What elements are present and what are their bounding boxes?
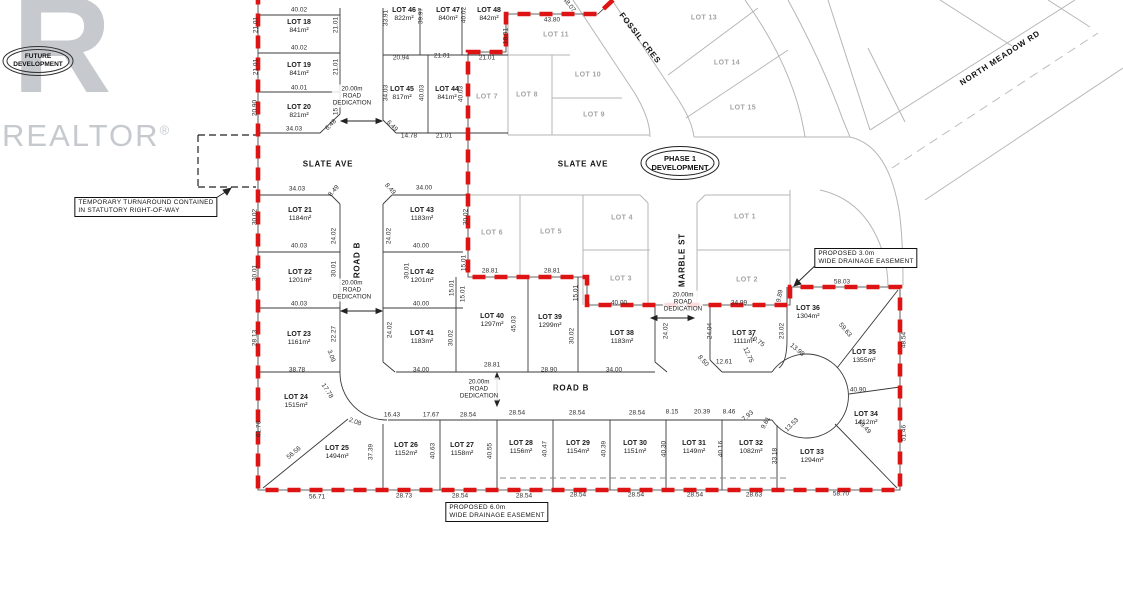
note-line-1: PROPOSED 3.0m: [818, 250, 913, 258]
dimension-text: 30.01: [252, 265, 259, 281]
lot-label: LOT 421201m²: [410, 269, 434, 285]
dedication-width: 20.00m: [664, 292, 702, 299]
lot-number: LOT 10: [575, 72, 601, 79]
dimension-text: 40.00: [611, 300, 627, 307]
dimension-text: 28.54: [570, 492, 586, 499]
dimension-text: 48.54: [901, 332, 908, 348]
dimension-text: 33.91: [383, 10, 390, 26]
dimension-text: 28.81: [484, 362, 500, 369]
dimension-text: 22.27: [331, 326, 338, 342]
dimension-text: 21.01: [253, 59, 260, 75]
lot-label: LOT 271158m²: [450, 442, 474, 458]
dimension-text: 14.78: [401, 133, 417, 140]
dimension-text: 40.03: [291, 301, 307, 308]
dimension-text: 40.00: [413, 301, 429, 308]
stamp-line-2: DEVELOPMENT: [651, 163, 708, 172]
dimension-text: 20.94: [393, 55, 409, 62]
dimension-text: 40.30: [661, 441, 668, 457]
future-lot-label: LOT 3: [610, 276, 632, 283]
dimension-text: 39.97: [418, 8, 425, 24]
dimension-label: 56.71: [309, 494, 325, 501]
lot-area: 1294m²: [800, 457, 824, 465]
street-name: ROAD B: [353, 242, 362, 278]
future-lot-label: LOT 5: [540, 229, 562, 236]
dimension-text: 40.02: [291, 7, 307, 14]
lot-label: LOT 311149m²: [682, 440, 706, 456]
dedication-road: ROAD: [333, 93, 371, 100]
lot-label: LOT 251494m²: [325, 445, 349, 461]
future-lot-label: LOT 13: [691, 15, 717, 22]
dedication-road: ROAD: [460, 386, 498, 393]
dimension-text: 34.00: [416, 185, 432, 192]
note-line-2: IN STATUTORY RIGHT-OF-WAY: [78, 207, 213, 215]
dimension-text: 58.03: [834, 279, 850, 286]
lot-area: 841m²: [435, 94, 459, 102]
lot-area: 841m²: [287, 27, 311, 35]
lot-number: LOT 27: [450, 442, 474, 450]
dimension-label: 28.54: [628, 492, 644, 499]
dimension-label: 8.15: [666, 409, 679, 416]
lot-number: LOT 7: [476, 94, 498, 101]
street-name-label: MARBLE ST: [678, 233, 687, 287]
dimension-text: 21.01: [333, 59, 340, 75]
dimension-label: 21.01: [333, 59, 340, 75]
street-name-label: ROAD B: [353, 242, 362, 278]
lot-number: LOT 40: [480, 313, 504, 321]
dedication-word: DEDICATION: [460, 393, 498, 400]
lot-label: LOT 361304m²: [796, 305, 820, 321]
lot-label: LOT 371111m²: [732, 330, 756, 346]
lot-number: LOT 36: [796, 305, 820, 313]
future-stamp: FUTUREDEVELOPMENT: [13, 53, 62, 69]
dimension-text: 30.02: [463, 209, 470, 225]
dimension-text: 38.78: [289, 367, 305, 374]
lot-area: 1412m²: [854, 419, 878, 427]
lot-area: 1158m²: [450, 450, 474, 458]
lot-area: 1183m²: [410, 215, 434, 223]
dimension-label: 34.00: [416, 185, 432, 192]
lot-number: LOT 3: [610, 276, 632, 283]
dimension-text: 15.01: [460, 286, 467, 302]
lot-number: LOT 4: [611, 215, 633, 222]
dedication-width: 20.00m: [460, 379, 498, 386]
street-name-label: ROAD B: [553, 384, 589, 393]
dimension-label: 30.01: [252, 265, 259, 281]
lot-area: 1183m²: [410, 338, 434, 346]
temporary-turnaround-outline: [198, 135, 256, 187]
dimension-label: 21.01: [253, 17, 260, 33]
lot-area: 1355m²: [852, 357, 876, 365]
dedication-road: ROAD: [333, 287, 371, 294]
dimension-text: 28.54: [509, 410, 525, 417]
dimension-label: 28.81: [484, 362, 500, 369]
lot-label: LOT 48842m²: [477, 7, 501, 23]
lot-number: LOT 15: [730, 105, 756, 112]
lot-number: LOT 24: [284, 394, 308, 402]
lot-label: LOT 19841m²: [287, 62, 311, 78]
dimension-text: 28.54: [516, 493, 532, 500]
dimension-label: 22.27: [331, 326, 338, 342]
lot-number: LOT 20: [287, 104, 311, 112]
dedication-width: 20.00m: [333, 280, 371, 287]
dimension-label: 40.02: [291, 45, 307, 52]
lot-number: LOT 37: [732, 330, 756, 338]
lot-label: LOT 221201m²: [288, 269, 312, 285]
dimension-label: 40.16: [718, 441, 725, 457]
dimension-label: 40.39: [601, 441, 608, 457]
lot-number: LOT 33: [800, 449, 824, 457]
dimension-label: 15.01: [449, 280, 456, 296]
dimension-label: 15.01: [573, 285, 580, 301]
lot-area: 1304m²: [796, 313, 820, 321]
lot-number: LOT 38: [610, 330, 634, 338]
note-line-2: WIDE DRAINAGE EASEMENT: [818, 258, 913, 266]
annotation-note-box: PROPOSED 3.0mWIDE DRAINAGE EASEMENT: [814, 248, 917, 268]
dimension-label: 28.13: [252, 330, 259, 346]
lot-number: LOT 30: [623, 440, 647, 448]
lot-label: LOT 47840m²: [436, 7, 460, 23]
dimension-label: 24.02: [663, 323, 670, 339]
dimension-label: 40.47: [542, 441, 549, 457]
lot-label: LOT 45817m²: [390, 86, 414, 102]
dimension-label: 28.54: [516, 493, 532, 500]
dimension-label: 21.01: [434, 53, 450, 60]
dimension-label: 28.54: [509, 410, 525, 417]
dimension-label: 30.01: [331, 261, 338, 277]
dimension-text: 28.54: [569, 410, 585, 417]
dimension-label: 34.03: [286, 126, 302, 133]
lot-number: LOT 18: [287, 19, 311, 27]
lot-area: 842m²: [477, 15, 501, 23]
dimension-text: 18.91: [503, 28, 510, 44]
road-dedication-label: 20.00mROADDEDICATION: [459, 378, 499, 401]
dimension-label: 28.90: [541, 367, 557, 374]
future-lot-label: LOT 6: [481, 230, 503, 237]
dimension-label: 58.03: [834, 279, 850, 286]
future-lot-label: LOT 4: [611, 215, 633, 222]
dimension-text: 21.01: [436, 133, 452, 140]
lot-number: LOT 1: [734, 214, 756, 221]
stamp-line-1: PHASE 1: [651, 154, 708, 163]
dimension-text: 30.01: [331, 261, 338, 277]
note-line-1: TEMPORARY TURNAROUND CONTAINED: [78, 199, 213, 207]
future-lot-label: LOT 10: [575, 72, 601, 79]
dimension-label: 21.01: [333, 17, 340, 33]
dimension-label: 8.46: [723, 409, 736, 416]
lot-area: 1201m²: [288, 277, 312, 285]
future-lot-label: LOT 1: [734, 214, 756, 221]
dimension-text: 28.13: [252, 330, 259, 346]
dimension-label: 33.18: [772, 448, 779, 464]
dimension-text: 21.01: [333, 17, 340, 33]
dimension-label: 40.02: [461, 7, 468, 23]
dimension-text: 28.90: [541, 367, 557, 374]
dimension-text: 28.63: [746, 492, 762, 499]
lot-label: LOT 211184m²: [288, 207, 312, 223]
lot-label: LOT 411183m²: [410, 330, 434, 346]
lot-area: 1201m²: [410, 277, 434, 285]
dimension-text: 28.54: [452, 493, 468, 500]
dimension-label: 30.02: [252, 209, 259, 225]
dimension-text: 24.04: [707, 323, 714, 339]
lot-number: LOT 22: [288, 269, 312, 277]
future-lot-label: LOT 11: [543, 32, 569, 39]
lot-number: LOT 28: [509, 440, 533, 448]
lot-label: LOT 391299m²: [538, 314, 562, 330]
dimension-label: 58.70: [833, 491, 849, 498]
dimension-text: 40.03: [291, 243, 307, 250]
lot-label: LOT 331294m²: [800, 449, 824, 465]
dimension-text: 40.39: [601, 441, 608, 457]
lot-area: 840m²: [436, 15, 460, 23]
lot-label: LOT 44841m²: [435, 86, 459, 102]
lot-number: LOT 21: [288, 207, 312, 215]
lot-label: LOT 341412m²: [854, 411, 878, 427]
dimension-text: 34.00: [413, 367, 429, 374]
future-lot-label: LOT 9: [583, 112, 605, 119]
dimension-label: 40.03: [291, 243, 307, 250]
dimension-label: 30.02: [448, 330, 455, 346]
lot-number: LOT 5: [540, 229, 562, 236]
dimension-label: 21.01: [436, 133, 452, 140]
dimension-text: 56.71: [309, 494, 325, 501]
street-name: MARBLE ST: [678, 233, 687, 287]
dimension-label: 37.39: [368, 444, 375, 460]
lot-area: 1111m²: [732, 338, 756, 346]
dimension-label: 28.81: [544, 268, 560, 275]
lot-area: 822m²: [392, 15, 416, 23]
dimension-text: 40.63: [430, 443, 437, 459]
lot-area: 1156m²: [509, 448, 533, 456]
dimension-text: 40.00: [413, 243, 429, 250]
dimension-text: 24.02: [331, 228, 338, 244]
dimension-text: 40.01: [291, 85, 307, 92]
lot-label: LOT 261152m²: [394, 442, 418, 458]
dimension-text: 40.55: [487, 443, 494, 459]
lot-number: LOT 6: [481, 230, 503, 237]
dimension-label: 24.02: [386, 228, 393, 244]
lot-area: 1152m²: [394, 450, 418, 458]
plat-map: R REALTOR®: [0, 0, 1123, 597]
dimension-label: 40.03: [291, 301, 307, 308]
dimension-label: 28.63: [746, 492, 762, 499]
lot-area: 1154m²: [566, 448, 590, 456]
future-lot-label: LOT 7: [476, 94, 498, 101]
lot-number: LOT 8: [516, 92, 538, 99]
lot-number: LOT 34: [854, 411, 878, 419]
dimension-text: 40.02: [461, 7, 468, 23]
dimension-label: 30.02: [463, 209, 470, 225]
lot-area: 1515m²: [284, 402, 308, 410]
dimension-label: 34.03: [383, 85, 390, 101]
dimension-label: 28.54: [569, 410, 585, 417]
dimension-label: 24.02: [387, 322, 394, 338]
street-name-label: SLATE AVE: [303, 160, 354, 169]
lot-area: 817m²: [390, 94, 414, 102]
lot-area: 841m²: [287, 70, 311, 78]
dimension-label: 15.01: [460, 286, 467, 302]
lot-label: LOT 281156m²: [509, 440, 533, 456]
future-lot-label: LOT 8: [516, 92, 538, 99]
dimension-text: 34.99: [731, 300, 747, 307]
dimension-label: 24.04: [707, 323, 714, 339]
lot-number: LOT 14: [714, 60, 740, 67]
dimension-label: 34.99: [731, 300, 747, 307]
lot-number: LOT 26: [394, 442, 418, 450]
dimension-text: 40.16: [718, 441, 725, 457]
dimension-text: 61.76: [256, 421, 263, 437]
dimension-text: 28.81: [482, 268, 498, 275]
lot-number: LOT 43: [410, 207, 434, 215]
dimension-label: 23.02: [779, 323, 786, 339]
dimension-label: 40.00: [611, 300, 627, 307]
lot-area: 1184m²: [288, 215, 312, 223]
dimension-text: 43.80: [544, 17, 560, 24]
lot-number: LOT 23: [287, 331, 311, 339]
dimension-text: 40.02: [291, 45, 307, 52]
lot-label: LOT 321082m²: [739, 440, 763, 456]
dedication-road: ROAD: [664, 299, 702, 306]
dimension-text: 28.73: [396, 493, 412, 500]
dedication-word: DEDICATION: [333, 294, 371, 301]
road-dedication-label: 20.00mROADDEDICATION: [332, 85, 372, 108]
dimension-label: 20.94: [393, 55, 409, 62]
dimension-label: 48.54: [901, 332, 908, 348]
future-lot-label: LOT 2: [736, 277, 758, 284]
lot-label: LOT 351355m²: [852, 349, 876, 365]
note-line-1: PROPOSED 6.0m: [449, 504, 544, 512]
dimension-label: 14.78: [401, 133, 417, 140]
lot-label: LOT 46822m²: [392, 7, 416, 23]
dimension-text: 40.03: [419, 85, 426, 101]
dimension-label: 17.67: [423, 412, 439, 419]
lot-label: LOT 18841m²: [287, 19, 311, 35]
lot-number: LOT 41: [410, 330, 434, 338]
dimension-text: 16.43: [384, 412, 400, 419]
dimension-text: 8.15: [666, 409, 679, 416]
dimension-text: 58.70: [833, 491, 849, 498]
lot-label: LOT 20821m²: [287, 104, 311, 120]
lot-number: LOT 42: [410, 269, 434, 277]
lot-number: LOT 46: [392, 7, 416, 15]
dimension-label: 16.43: [384, 412, 400, 419]
dimension-label: 40.00: [413, 301, 429, 308]
stamp-line-1: FUTURE: [13, 53, 62, 61]
dedication-word: DEDICATION: [664, 306, 702, 313]
stamp-line-2: DEVELOPMENT: [13, 61, 62, 69]
dimension-text: 34.00: [606, 367, 622, 374]
dimension-text: 28.54: [629, 410, 645, 417]
dimension-text: 28.54: [628, 492, 644, 499]
dimension-text: 28.81: [544, 268, 560, 275]
dimension-label: 21.01: [479, 55, 495, 62]
dimension-text: 34.03: [383, 85, 390, 101]
dimension-label: 40.03: [419, 85, 426, 101]
lot-number: LOT 11: [543, 32, 569, 39]
survey-linework: [0, 0, 1123, 597]
dimension-text: 24.02: [663, 323, 670, 339]
dimension-label: 15.01: [461, 255, 468, 271]
dimension-label: 43.80: [544, 17, 560, 24]
road-dedication-label: 20.00mROADDEDICATION: [332, 279, 372, 302]
dedication-width: 20.00m: [333, 86, 371, 93]
lot-number: LOT 32: [739, 440, 763, 448]
dimension-label: 40.00: [413, 243, 429, 250]
dimension-text: 37.39: [368, 444, 375, 460]
dimension-text: 33.18: [772, 448, 779, 464]
dimension-label: 40.02: [291, 7, 307, 14]
dimension-text: 30.02: [448, 330, 455, 346]
lot-label: LOT 381183m²: [610, 330, 634, 346]
dimension-label: 28.54: [460, 412, 476, 419]
dimension-label: 28.81: [482, 268, 498, 275]
lot-number: LOT 35: [852, 349, 876, 357]
dimension-text: 24.02: [386, 228, 393, 244]
lot-area: 1297m²: [480, 321, 504, 329]
dimension-text: 40.90: [850, 387, 866, 394]
lot-number: LOT 44: [435, 86, 459, 94]
dimension-text: 20.39: [694, 409, 710, 416]
dimension-text: 30.02: [252, 209, 259, 225]
dimension-text: 34.03: [289, 186, 305, 193]
dimension-text: 51.46: [901, 425, 908, 441]
lot-area: 1161m²: [287, 339, 311, 347]
dimension-label: 34.00: [413, 367, 429, 374]
lot-label: LOT 231161m²: [287, 331, 311, 347]
lot-number: LOT 39: [538, 314, 562, 322]
dimension-text: 12.61: [716, 359, 732, 366]
street-name-label: SLATE AVE: [558, 160, 609, 169]
dimension-label: 40.30: [661, 441, 668, 457]
lot-number: LOT 48: [477, 7, 501, 15]
dimension-label: 40.55: [487, 443, 494, 459]
dimension-label: 40.90: [850, 387, 866, 394]
road-centerline-dashed: [892, 33, 1098, 168]
dimension-text: 21.01: [434, 53, 450, 60]
lot-label: LOT 241515m²: [284, 394, 308, 410]
lot-number: LOT 19: [287, 62, 311, 70]
future-lot-label: LOT 14: [714, 60, 740, 67]
lot-label: LOT 431183m²: [410, 207, 434, 223]
dimension-label: 28.54: [570, 492, 586, 499]
dimension-label: 40.63: [430, 443, 437, 459]
dimension-label: 21.01: [253, 59, 260, 75]
street-name: ROAD B: [553, 384, 589, 393]
lot-number: LOT 13: [691, 15, 717, 22]
lot-area: 821m²: [287, 112, 311, 120]
lot-number: LOT 31: [682, 440, 706, 448]
lot-label: LOT 291154m²: [566, 440, 590, 456]
lot-number: LOT 2: [736, 277, 758, 284]
dimension-text: 23.02: [779, 323, 786, 339]
lot-area: 1494m²: [325, 453, 349, 461]
dimension-label: 34.03: [289, 186, 305, 193]
lot-area: 1299m²: [538, 322, 562, 330]
lot-label: LOT 401297m²: [480, 313, 504, 329]
street-name: SLATE AVE: [558, 160, 609, 169]
dimension-text: 8.46: [723, 409, 736, 416]
dimension-text: 24.02: [387, 322, 394, 338]
dimension-label: 51.46: [901, 425, 908, 441]
lot-label: LOT 301151m²: [623, 440, 647, 456]
lot-number: LOT 29: [566, 440, 590, 448]
future-lot-label: LOT 15: [730, 105, 756, 112]
dimension-label: 38.78: [289, 367, 305, 374]
lot-number: LOT 45: [390, 86, 414, 94]
dimension-text: 17.67: [423, 412, 439, 419]
dimension-label: 61.76: [256, 421, 263, 437]
lot-number: LOT 9: [583, 112, 605, 119]
